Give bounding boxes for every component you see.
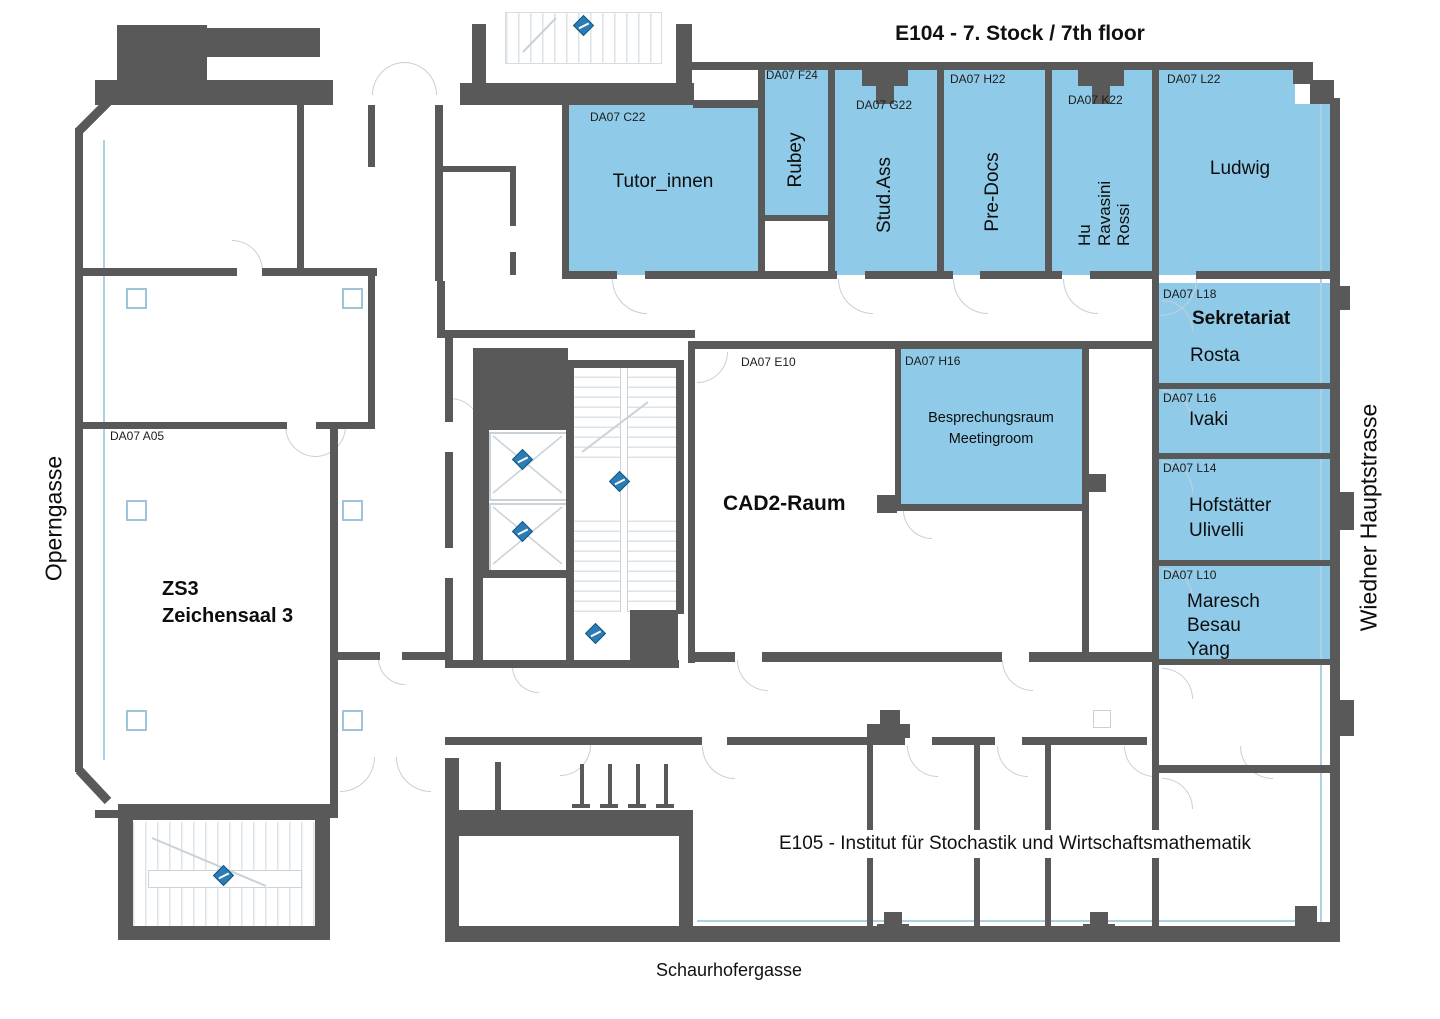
room-code: DA07 K22 [1068, 93, 1123, 107]
shaft-fill [473, 348, 568, 430]
room-name: Ivaki [1189, 409, 1228, 431]
wall [688, 349, 695, 663]
wall [435, 105, 443, 281]
wall [510, 252, 516, 275]
wall [445, 926, 693, 942]
wall [688, 652, 735, 662]
wall [1340, 286, 1350, 310]
wall [758, 215, 832, 221]
wall [566, 612, 574, 666]
wall [473, 430, 489, 570]
wall [472, 24, 486, 84]
street-label-wiedner-hauptstrasse: Wiedner Hauptstrasse [1356, 398, 1383, 638]
wall [338, 652, 380, 660]
wall [368, 105, 375, 167]
wall [862, 70, 908, 86]
wall [877, 495, 897, 513]
wall [636, 764, 640, 808]
wall [118, 804, 133, 940]
wall [1029, 652, 1155, 662]
wall [762, 652, 1002, 662]
floor-title: E104 - 7. Stock / 7th floor [750, 22, 1290, 46]
wall [75, 128, 83, 772]
wall [402, 652, 445, 660]
wall [1340, 700, 1354, 736]
wall [75, 268, 237, 276]
wall [75, 422, 287, 429]
room-name: Tutor_innen [563, 171, 763, 193]
room-name: Stud.Ass [874, 130, 898, 260]
stair-diagonal [152, 838, 266, 886]
wall [566, 360, 574, 614]
room-code: DA07 L16 [1163, 391, 1216, 405]
wall [297, 105, 304, 275]
room-name: Pre-Docs [982, 122, 1006, 262]
floor-plan: E104 - 7. Stock / 7th floor Operngasse W… [0, 0, 1440, 1019]
wall [676, 360, 684, 614]
wall [1022, 737, 1147, 745]
wall [316, 422, 375, 429]
wall [1045, 66, 1052, 279]
wall [1152, 765, 1332, 773]
wall [1082, 474, 1106, 492]
wall [572, 804, 590, 808]
wall [473, 570, 566, 578]
wall [865, 271, 953, 279]
wall [473, 578, 483, 664]
stair-diagonal [523, 18, 556, 52]
wall [445, 660, 679, 668]
wall [664, 764, 668, 808]
room-name: Maresch Besau Yang [1187, 590, 1260, 662]
room-name: Sekretariat [1192, 308, 1290, 330]
room-name: ZS3 Zeichensaal 3 [162, 576, 293, 630]
room-code: DA07 L10 [1163, 568, 1216, 582]
wall [118, 926, 330, 940]
wall [117, 25, 207, 82]
room-code: DA07 C22 [590, 110, 645, 124]
wall [693, 100, 760, 108]
wall [495, 762, 501, 812]
institute-label: E105 - Institut für Stochastik und Wirts… [735, 830, 1295, 858]
wall [600, 804, 618, 808]
shaft-fill [630, 610, 678, 667]
room-name: Rubey [785, 105, 807, 215]
wall [645, 271, 837, 279]
wall [1083, 924, 1115, 932]
wall [895, 504, 1087, 511]
room-name: Ludwig [1140, 158, 1340, 180]
street-label-schaurhofergasse: Schaurhofergasse [579, 960, 879, 981]
diagonal-wall [79, 770, 108, 801]
wall [679, 810, 693, 940]
wall [118, 804, 330, 820]
wall [95, 80, 333, 105]
wall [1158, 453, 1332, 459]
room-name: CAD2-Raum [723, 492, 846, 516]
room-code: DA07 E10 [741, 355, 796, 369]
wall [1330, 98, 1340, 281]
room-code: DA07 A05 [110, 429, 164, 443]
wall [580, 764, 584, 808]
room-name: Besprechungsraum Meetingroom [891, 408, 1091, 450]
wall [676, 62, 1300, 70]
wall [459, 810, 689, 836]
wall [330, 422, 338, 818]
wall [445, 338, 453, 422]
wall [1090, 271, 1152, 279]
wall [1340, 492, 1354, 530]
wall [676, 24, 692, 84]
room-code: DA07 G22 [856, 98, 912, 112]
wall [437, 166, 515, 172]
room-code: DA07 L14 [1163, 461, 1216, 475]
wall [262, 268, 377, 276]
wall [445, 578, 453, 664]
wall [445, 452, 453, 548]
wall [628, 804, 646, 808]
wall [980, 271, 1062, 279]
room-code: DA07 H22 [950, 72, 1005, 86]
wall [937, 66, 944, 279]
room-occupant: Rosta [1190, 345, 1240, 367]
room-name: Hofstätter Ulivelli [1189, 494, 1271, 543]
wall [828, 66, 835, 279]
wall [1196, 271, 1332, 279]
room-code: DA07 L18 [1163, 287, 1216, 301]
stair-diagonal [582, 402, 648, 452]
wall [445, 330, 695, 338]
wall [1158, 560, 1332, 566]
wall [1158, 383, 1332, 389]
wall [1082, 341, 1089, 662]
wall [608, 764, 612, 808]
wall [510, 166, 516, 226]
wall [368, 268, 375, 428]
street-label-operngasse: Operngasse [41, 419, 68, 619]
wall [1078, 70, 1124, 86]
wall [205, 28, 320, 57]
wall [565, 271, 617, 279]
wall [867, 724, 910, 738]
wall [437, 281, 445, 338]
wall [656, 804, 674, 808]
room-name: Hu Ravasini Rossi [1075, 134, 1135, 246]
wall [445, 758, 459, 940]
wall [566, 360, 678, 368]
wall [1330, 281, 1340, 942]
room-code: DA07 F24 [766, 70, 818, 82]
wall [691, 926, 1332, 942]
room-code: DA07 L22 [1167, 72, 1220, 86]
room-code: DA07 H16 [905, 354, 960, 368]
wall [932, 737, 995, 745]
wall [727, 737, 905, 745]
wall [315, 804, 330, 940]
wall [877, 924, 909, 932]
wall [460, 83, 694, 105]
wall [445, 737, 702, 745]
